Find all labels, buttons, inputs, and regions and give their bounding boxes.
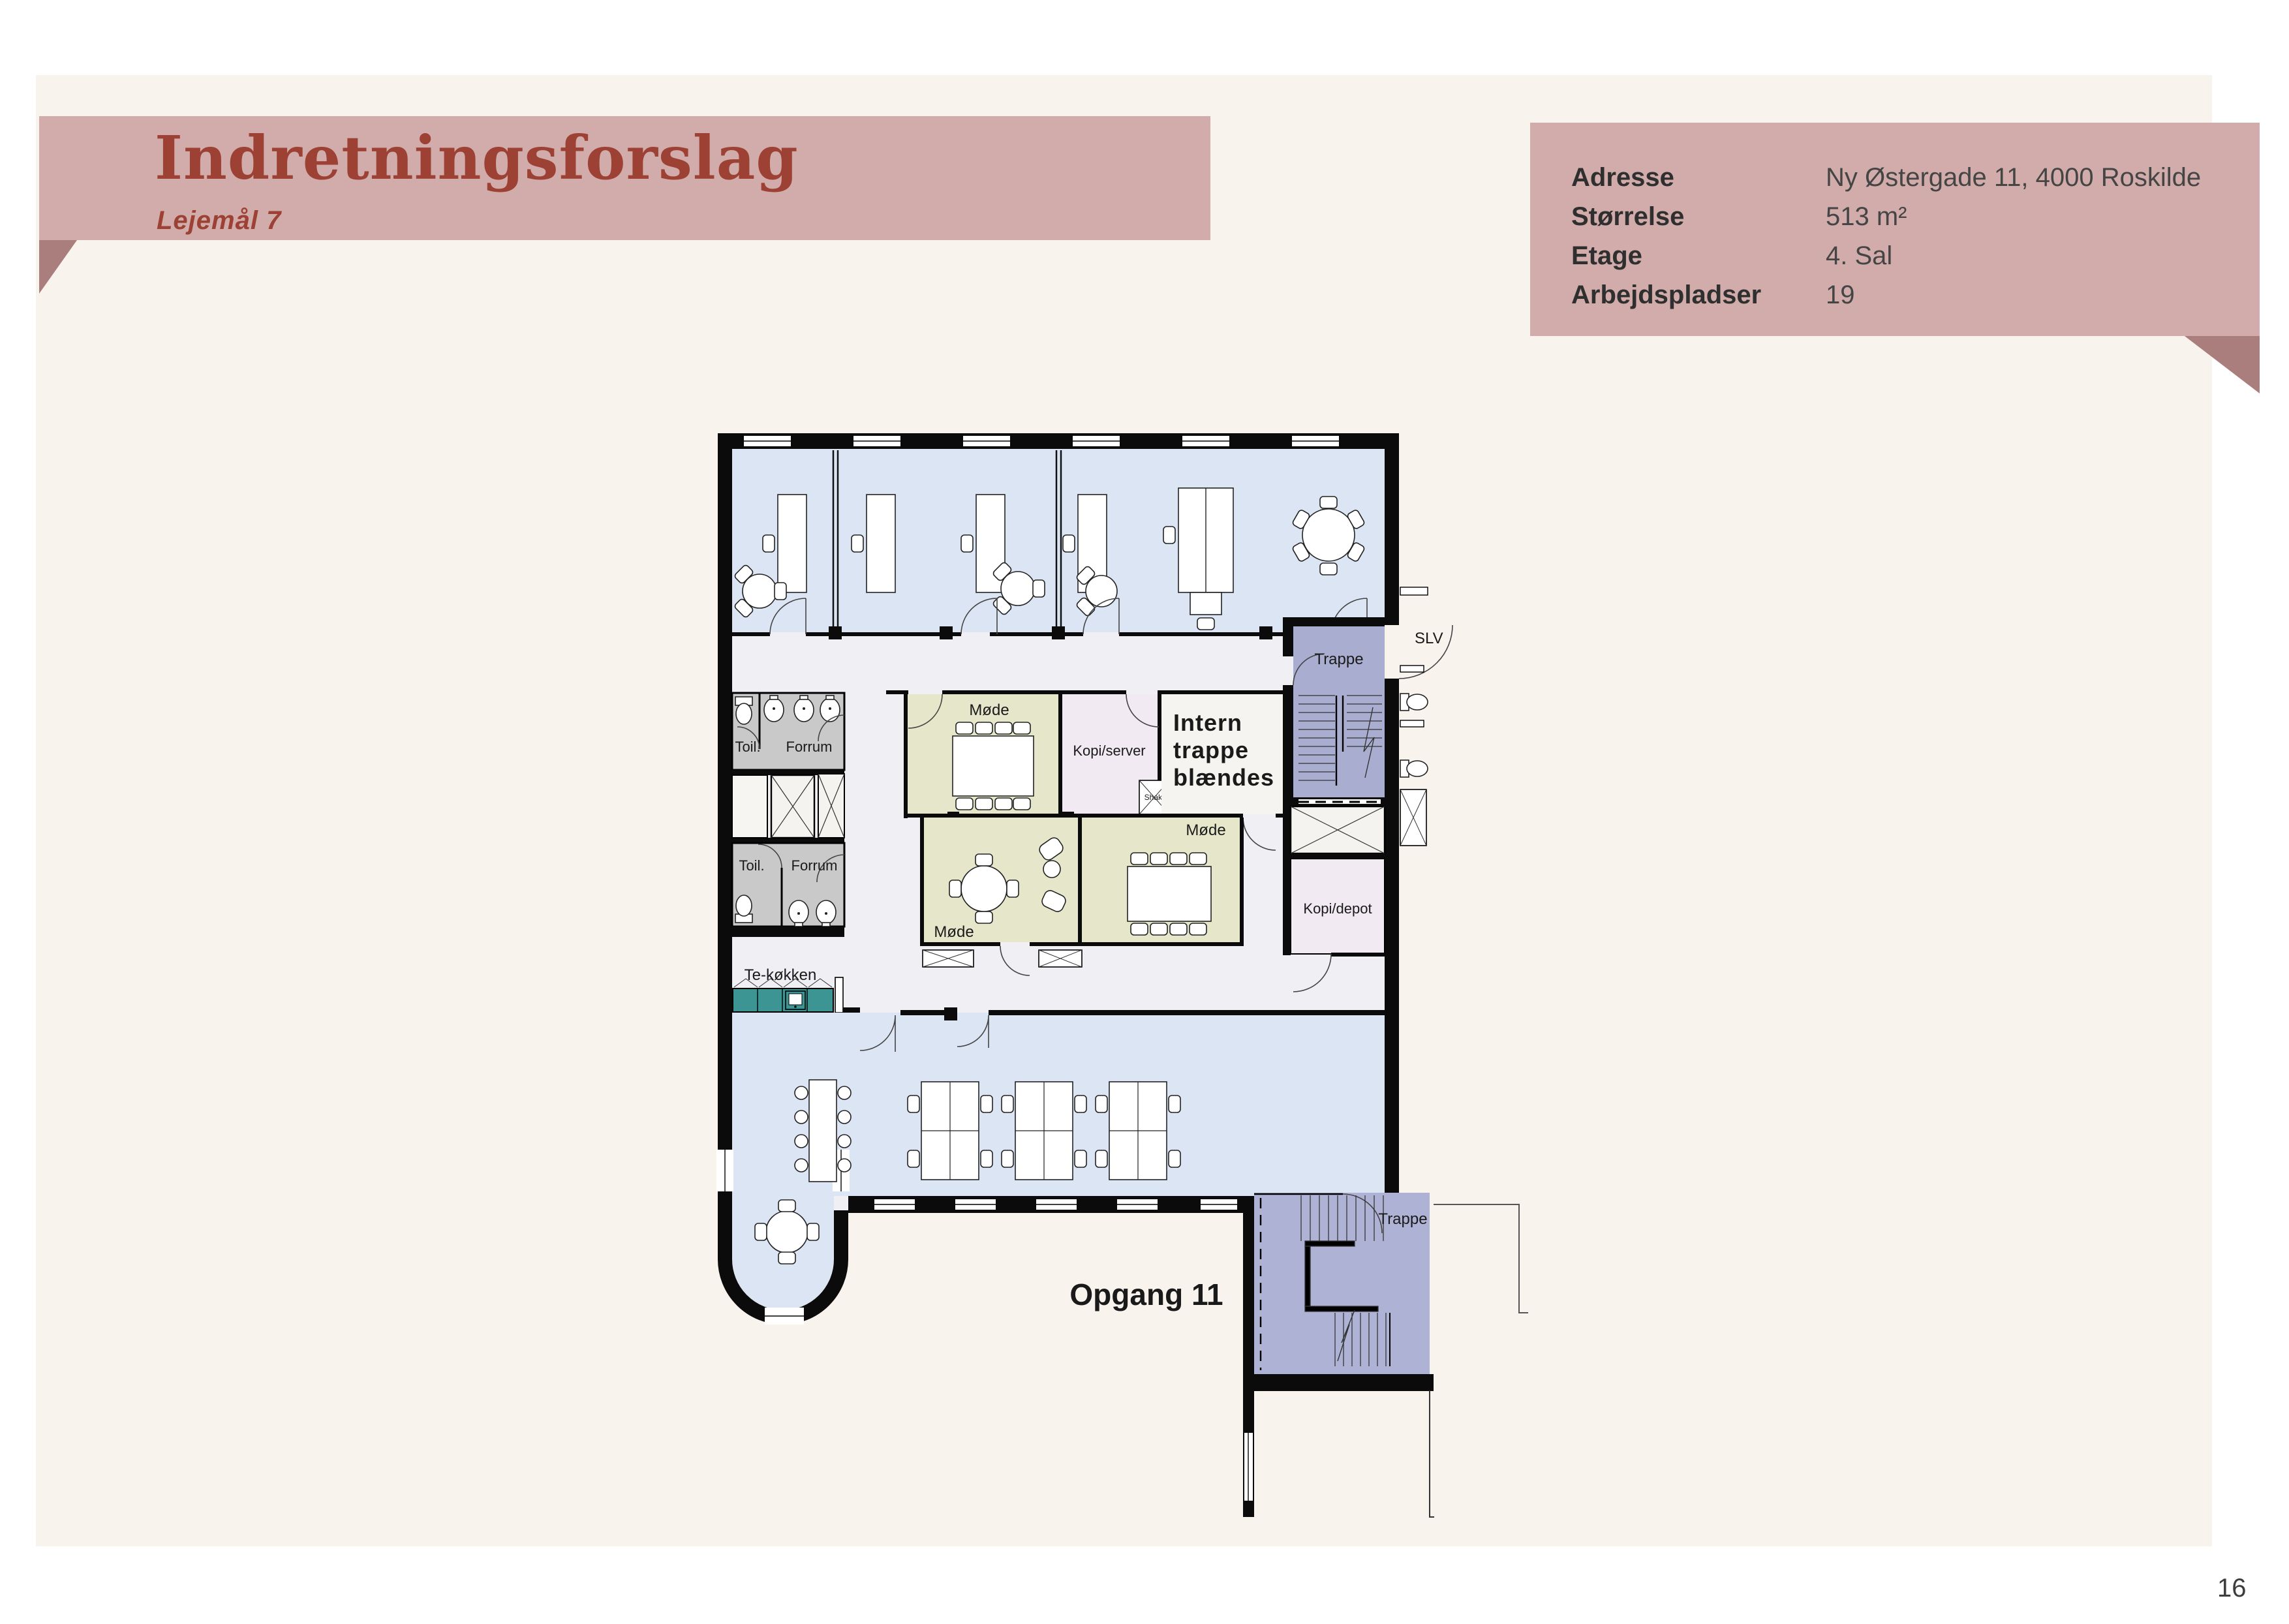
room-label-tekokken: Te-køkken — [745, 966, 817, 984]
room-label-trappe-bottom: Trappe — [1378, 1210, 1427, 1228]
page-title: Indretningsforslag — [155, 128, 799, 188]
room-label-trappe-top: Trappe — [1314, 651, 1363, 668]
toilet-icon — [735, 895, 752, 923]
info-row-storrelse: Størrelse 513 m² — [1571, 202, 2224, 240]
room-trappe-bottom: Trappe — [1243, 1193, 1528, 1517]
room-label-kopi-depot: Kopi/depot — [1303, 900, 1372, 917]
room-kopi-server: Kopi/server Shakt — [1062, 690, 1169, 818]
info-value: 4. Sal — [1826, 241, 1892, 271]
title-banner-fold — [39, 240, 77, 294]
info-box-fold — [2185, 336, 2260, 393]
page-number: 16 — [2217, 1574, 2247, 1603]
wc-block-lower: Toil. Forrum — [718, 843, 844, 937]
opgang-label: Opgang 11 — [1069, 1278, 1223, 1311]
room-mode-round: Møde — [920, 818, 1082, 975]
room-label-mode-right: Møde — [1186, 821, 1225, 839]
info-label: Størrelse — [1571, 202, 1684, 232]
intern-text-3: blændes — [1173, 764, 1274, 791]
intern-text-1: Intern — [1173, 709, 1242, 736]
elevator-icon — [771, 774, 844, 838]
toilet-icon — [1400, 694, 1428, 777]
room-mode-right: Møde — [1082, 818, 1244, 946]
floor-plan: Toil. Forrum — [692, 405, 1553, 1553]
room-label-toil-lower: Toil. — [739, 857, 764, 874]
info-value: 19 — [1826, 281, 1855, 310]
info-row-arbejdspladser: Arbejdspladser 19 — [1571, 281, 2224, 318]
slv-label: SLV — [1415, 630, 1443, 647]
info-value: Ny Østergade 11, 4000 Roskilde — [1826, 163, 2201, 192]
room-trappe-top: Trappe — [1283, 617, 1399, 806]
elevators — [718, 770, 844, 843]
room-intern-trappe: Intern trappe blændes — [1161, 690, 1287, 818]
sink-icon — [764, 696, 840, 722]
info-label: Etage — [1571, 241, 1642, 271]
property-info-box: Adresse Ny Østergade 11, 4000 Roskilde S… — [1530, 123, 2260, 336]
room-label-toil-upper: Toil. — [735, 739, 760, 755]
office-rooms — [732, 449, 1385, 632]
toilet-icon — [735, 697, 752, 724]
room-label-mode-top: Møde — [969, 701, 1009, 719]
info-value: 513 m² — [1826, 202, 1907, 232]
info-row-etage: Etage 4. Sal — [1571, 241, 2224, 279]
room-label-kopi-server: Kopi/server — [1073, 743, 1145, 759]
intern-text-2: trappe — [1173, 737, 1249, 763]
room-label-forrum-upper: Forrum — [786, 739, 833, 755]
wc-block-upper: Toil. Forrum — [732, 693, 844, 770]
info-label: Adresse — [1571, 163, 1674, 192]
info-label: Arbejdspladser — [1571, 281, 1761, 310]
room-label-mode-round: Møde — [934, 923, 974, 941]
page-subtitle: Lejemål 7 — [157, 206, 281, 236]
room-label-forrum-lower: Forrum — [791, 857, 838, 874]
info-row-adresse: Adresse Ny Østergade 11, 4000 Roskilde — [1571, 163, 2224, 201]
brochure-page: Indretningsforslag Lejemål 7 Adresse Ny … — [0, 0, 2289, 1624]
